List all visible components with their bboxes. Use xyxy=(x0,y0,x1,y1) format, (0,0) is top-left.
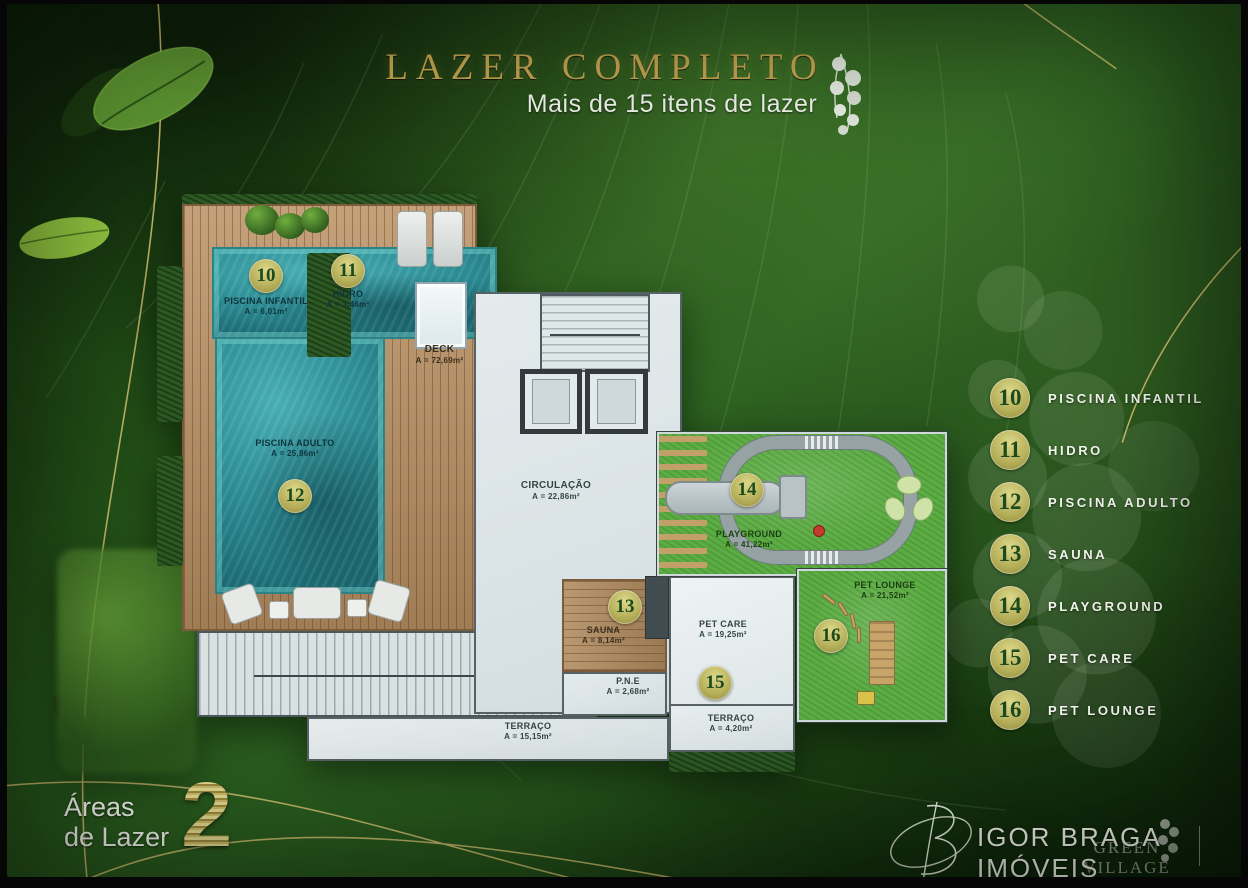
legend-item-hidro: 11 HIDRO xyxy=(990,430,1204,470)
page-subtitle: Mais de 15 itens de lazer xyxy=(507,90,837,119)
plan-badge-15: 15 xyxy=(698,666,732,700)
hedge-below-terrace xyxy=(669,752,795,772)
plan-badge-10: 10 xyxy=(249,259,283,293)
room-area: A = 41,22m² xyxy=(689,540,809,549)
play-structure-icon xyxy=(881,473,937,529)
room-label-pne: P.N.E A = 2,68m² xyxy=(568,676,688,696)
planter-left-1 xyxy=(157,266,183,422)
deck-side-table-1 xyxy=(269,601,289,619)
room-label-circulacao: CIRCULAÇÃO A = 22,86m² xyxy=(496,480,616,501)
areas-number: 2 xyxy=(181,774,232,857)
legend-badge: 16 xyxy=(990,690,1030,730)
room-name: SAUNA xyxy=(551,625,656,635)
plan-badge-11: 11 xyxy=(331,254,365,288)
room-name: PLAYGROUND xyxy=(689,529,809,539)
legend-item-pet-lounge: 16 PET LOUNGE xyxy=(990,690,1204,730)
room-label-sauna: SAUNA A = 8,14m² xyxy=(551,625,656,645)
room-area: A = 19,25m² xyxy=(663,630,783,639)
room-area: A = 4,20m² xyxy=(671,724,791,733)
legend-label: PISCINA INFANTIL xyxy=(1048,391,1204,406)
deck-side-table-2 xyxy=(347,599,367,617)
glass-room xyxy=(415,282,467,349)
playground-slide xyxy=(665,481,785,515)
room-label-pet-lounge: PET LOUNGE A = 21,52m² xyxy=(825,580,945,600)
legend-badge: 11 xyxy=(990,430,1030,470)
brand-block: GREEN VILLAGE RESIDENCE IGOR BRAGA IMÓVE… xyxy=(887,794,1227,877)
room-label-hidro: HIDRO A = 3,46m² xyxy=(303,289,393,309)
track-crosswalk-bottom xyxy=(805,551,839,564)
legend-label: PET CARE xyxy=(1048,651,1135,666)
planter-left-2 xyxy=(157,456,183,566)
room-area: A = 3,46m² xyxy=(303,300,393,309)
room-name: DECK xyxy=(392,344,487,355)
room-name: PET CARE xyxy=(663,619,783,629)
pet-toy-box xyxy=(857,691,875,705)
plan-badge-16: 16 xyxy=(814,619,848,653)
pet-ramp xyxy=(869,621,895,685)
plan-badge-14: 14 xyxy=(730,473,764,507)
pet-slalom-4 xyxy=(857,627,862,643)
room-label-piscina-adulto: PISCINA ADULTO A = 25,86m² xyxy=(235,438,355,458)
floor-plan: PISCINA INFANTIL A = 6,01m² HIDRO A = 3,… xyxy=(157,189,957,769)
sun-lounger-2 xyxy=(433,211,463,267)
poster-canvas: LAZER COMPLETO Mais de 15 itens de lazer xyxy=(7,4,1241,877)
legend-badge: 13 xyxy=(990,534,1030,574)
room-name: P.N.E xyxy=(568,676,688,686)
room-label-terraco-2: TERRAÇO A = 4,20m² xyxy=(671,713,791,733)
page-title: LAZER COMPLETO xyxy=(375,46,835,89)
room-label-terraco-1: TERRAÇO A = 15,15m² xyxy=(458,721,598,741)
legend-badge: 15 xyxy=(990,638,1030,678)
legend-item-playground: 14 PLAYGROUND xyxy=(990,586,1204,626)
legend-badge: 12 xyxy=(990,482,1030,522)
slide-platform xyxy=(779,475,807,519)
eucalyptus-sprig-icon xyxy=(823,44,875,136)
core-stairs xyxy=(540,294,650,372)
legend-label: PISCINA ADULTO xyxy=(1048,495,1193,510)
legend-item-piscina-adulto: 12 PISCINA ADULTO xyxy=(990,482,1204,522)
room-area: A = 72,69m² xyxy=(392,356,487,365)
legend-item-sauna: 13 SAUNA xyxy=(990,534,1204,574)
room-label-deck: DECK A = 72,69m² xyxy=(392,344,487,365)
room-area: A = 21,52m² xyxy=(825,591,945,600)
legend-item-pet-care: 15 PET CARE xyxy=(990,638,1204,678)
brand-name: IGOR BRAGA IMÓVEIS xyxy=(977,822,1227,877)
plan-badge-13: 13 xyxy=(608,590,642,624)
deck-plant-1 xyxy=(245,205,279,235)
room-label-playground: PLAYGROUND A = 41,22m² xyxy=(689,529,809,549)
room-name: CIRCULAÇÃO xyxy=(496,480,616,491)
legend-label: SAUNA xyxy=(1048,547,1107,562)
room-area: A = 8,14m² xyxy=(551,636,656,645)
room-area: A = 22,86m² xyxy=(496,492,616,501)
plan-badge-12: 12 xyxy=(278,479,312,513)
legend-badge: 14 xyxy=(990,586,1030,626)
room-name: TERRAÇO xyxy=(458,721,598,731)
legend-item-piscina-infantil: 10 PISCINA INFANTIL xyxy=(990,378,1204,418)
legend-label: HIDRO xyxy=(1048,443,1103,458)
areas-line2: de Lazer xyxy=(64,822,169,852)
room-name: PET LOUNGE xyxy=(825,580,945,590)
deck-plant-3 xyxy=(301,207,329,233)
adult-pool xyxy=(215,337,385,594)
legend: 10 PISCINA INFANTIL 11 HIDRO 12 PISCINA … xyxy=(990,378,1204,730)
room-name: HIDRO xyxy=(303,289,393,299)
deck-sofa xyxy=(293,587,341,619)
legend-label: PET LOUNGE xyxy=(1048,703,1159,718)
areas-de-lazer-block: Áreas de Lazer 2 xyxy=(64,788,232,857)
areas-label: Áreas de Lazer xyxy=(64,792,169,852)
elevator-1 xyxy=(520,369,582,434)
room-area: A = 2,68m² xyxy=(568,687,688,696)
room-label-pet-care: PET CARE A = 19,25m² xyxy=(663,619,783,639)
legend-label: PLAYGROUND xyxy=(1048,599,1165,614)
track-crosswalk-top xyxy=(805,436,839,449)
room-area: A = 15,15m² xyxy=(458,732,598,741)
room-name: PISCINA ADULTO xyxy=(235,438,355,448)
core-stair-rail xyxy=(550,334,640,336)
elevator-2 xyxy=(585,369,648,434)
room-area: A = 25,86m² xyxy=(235,449,355,458)
legend-badge: 10 xyxy=(990,378,1030,418)
lawn-patch xyxy=(57,549,197,774)
seesaw-toy xyxy=(813,525,825,537)
sun-lounger-1 xyxy=(397,211,427,267)
signature-b-icon xyxy=(887,794,973,877)
areas-line1: Áreas xyxy=(64,792,169,822)
room-name: TERRAÇO xyxy=(671,713,791,723)
